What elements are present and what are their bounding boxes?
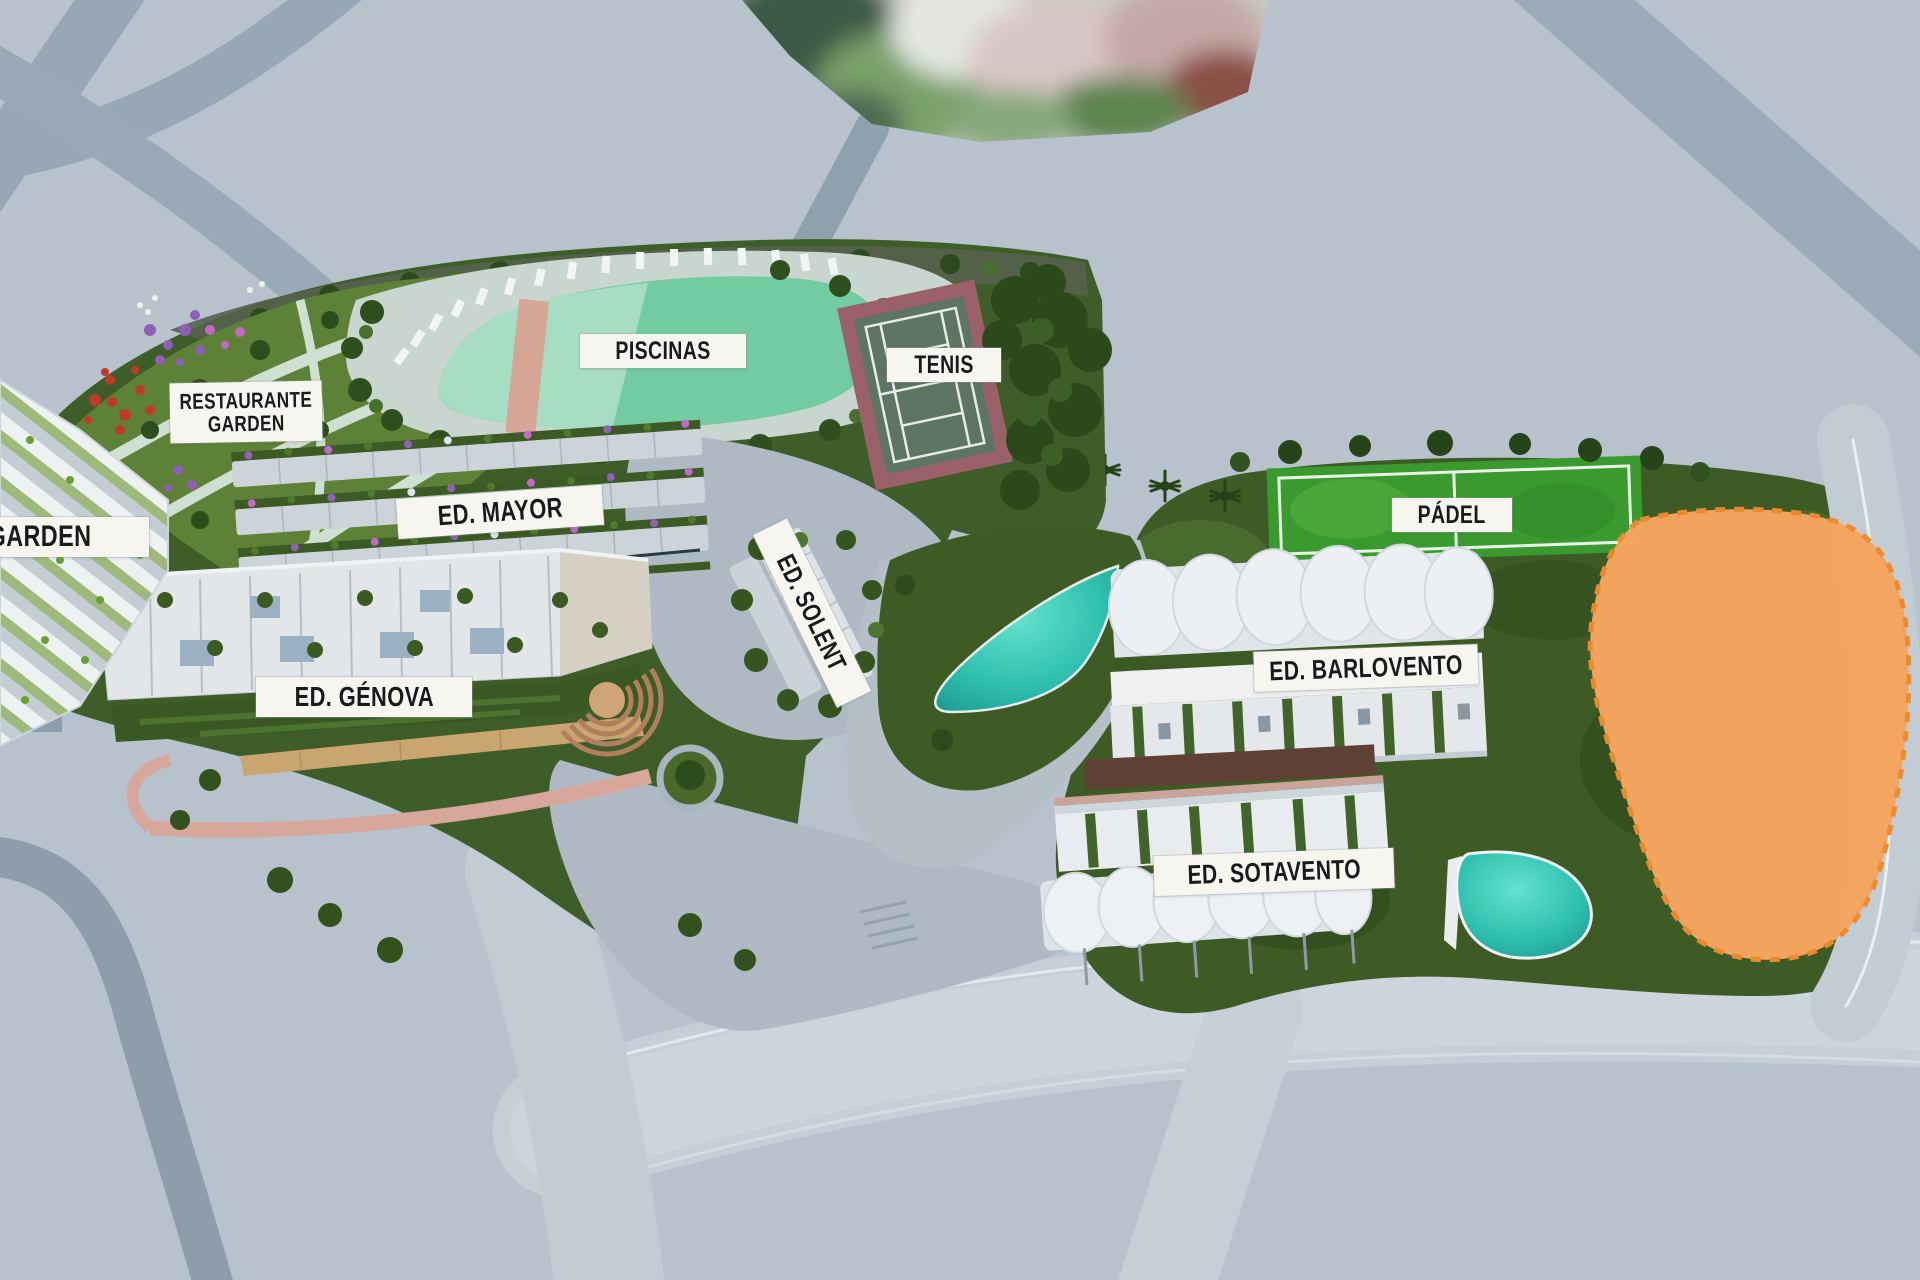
- label-ed-barlovento[interactable]: ED. BARLOVENTO: [1253, 644, 1478, 692]
- label-padel[interactable]: PÁDEL: [1392, 498, 1512, 532]
- masterplan-canvas: GARDEN RESTAURANTE GARDEN PISCINAS TENIS…: [0, 0, 1920, 1280]
- label-garden[interactable]: GARDEN: [0, 517, 149, 557]
- label-ed-sotavento[interactable]: ED. SOTAVENTO: [1153, 848, 1394, 896]
- label-tenis[interactable]: TENIS: [887, 348, 1001, 382]
- label-restaurante-garden[interactable]: RESTAURANTE GARDEN: [169, 381, 322, 444]
- label-ed-genova[interactable]: ED. GÉNOVA: [256, 677, 472, 717]
- label-piscinas[interactable]: PISCINAS: [580, 334, 746, 368]
- site-plan-art: [0, 0, 1920, 1280]
- roundabout-green: [660, 748, 720, 808]
